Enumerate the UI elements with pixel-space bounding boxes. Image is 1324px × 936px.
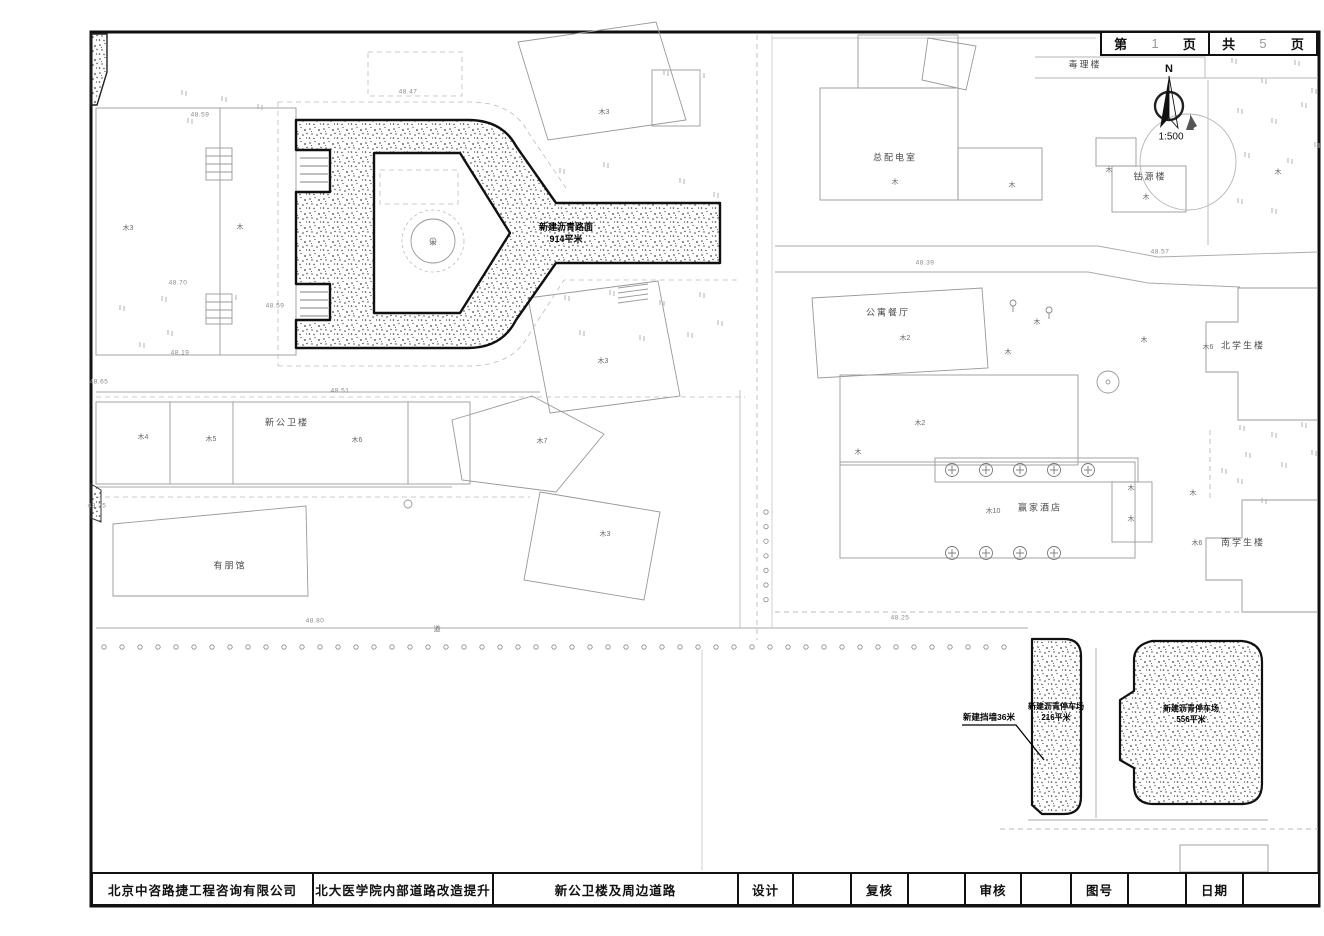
new-parking-large-area xyxy=(1120,641,1262,804)
title-block-cell: 北京中咨路捷工程咨询有限公司 xyxy=(93,874,312,904)
title-block-cell: 图号 xyxy=(1070,874,1127,904)
total-suffix: 页 xyxy=(1291,34,1304,53)
drawing-sheet: 第 1 页 共 5 页 N 1:500 新建沥青路面 914平米 新建沥青停车场… xyxy=(0,0,1324,936)
tree-circle-icon xyxy=(411,219,455,263)
total-prefix: 共 xyxy=(1222,34,1235,53)
title-block-cell: 北大医学院内部道路改造提升 xyxy=(312,874,492,904)
north-arrow-icon xyxy=(1155,76,1197,130)
new-asphalt-road-area xyxy=(296,120,720,348)
sheet-number-box: 第 1 页 共 5 页 xyxy=(1100,31,1318,56)
page-number: 1 xyxy=(1151,36,1158,51)
title-block-blank-cell xyxy=(792,874,850,904)
sheet-total-cell: 共 5 页 xyxy=(1210,33,1316,54)
title-block-blank-cell xyxy=(1020,874,1070,904)
title-block-cell: 复核 xyxy=(850,874,907,904)
title-block: 北京中咨路捷工程咨询有限公司北大医学院内部道路改造提升新公卫楼及周边道路设计复核… xyxy=(91,872,1320,906)
title-block-cell: 新公卫楼及周边道路 xyxy=(492,874,737,904)
roof-vent-icons xyxy=(946,464,1095,560)
left-dashed-boundaries xyxy=(96,52,745,497)
page-prefix: 第 xyxy=(1114,34,1127,53)
title-block-cell: 日期 xyxy=(1185,874,1242,904)
site-plan-linework xyxy=(0,0,1324,936)
left-campus-buildings xyxy=(96,22,700,600)
hatched-corner-wedge xyxy=(91,34,107,105)
page-suffix: 页 xyxy=(1183,34,1196,53)
new-parking-small-area xyxy=(1032,639,1081,814)
title-block-cell: 审核 xyxy=(964,874,1020,904)
title-block-blank-cell xyxy=(907,874,964,904)
total-number: 5 xyxy=(1259,36,1266,51)
sheet-number-cell: 第 1 页 xyxy=(1102,33,1210,54)
title-block-blank-cell xyxy=(1242,874,1318,904)
hatched-edge-wedge xyxy=(91,484,101,522)
title-block-blank-cell xyxy=(1127,874,1185,904)
title-block-cell: 设计 xyxy=(737,874,792,904)
